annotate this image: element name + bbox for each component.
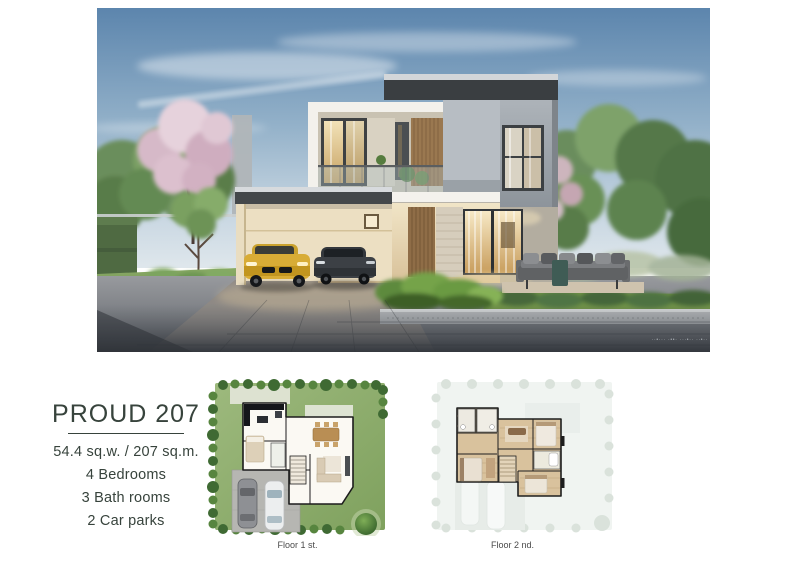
listing-info: PROUD 207 54.4 sq.w. / 207 sq.m. 4 Bedro… (34, 401, 218, 529)
staircase (290, 456, 306, 484)
wall-ornament (365, 215, 378, 228)
upper-floor (457, 408, 565, 496)
bathroom-a (458, 409, 475, 432)
render-watermark: ··•··· ·••· ···•·· ··•·· (640, 336, 708, 345)
spec-bedrooms: 4 Bedrooms (34, 467, 218, 483)
floor-plan-1 (205, 378, 390, 536)
spec-bathrooms: 3 Bath rooms (34, 490, 218, 506)
title-underline (68, 433, 184, 434)
front-door-wood (408, 207, 435, 277)
floor-plan-1-caption: Floor 1 st. (205, 540, 390, 550)
carport-roof (235, 187, 392, 192)
balcony-ledge-2 (561, 478, 565, 488)
floor-plan-2 (430, 378, 615, 536)
dining-set (313, 422, 339, 447)
staircase-2 (499, 456, 516, 482)
house-render-scene (97, 8, 710, 352)
bathroom (271, 443, 285, 467)
travertine-strip (436, 207, 463, 277)
balcony-ledge-1 (561, 436, 565, 446)
flat-roof (384, 74, 558, 100)
bedroom-3-bed (525, 475, 547, 493)
sitting-area (505, 426, 528, 442)
plan-car-white (265, 481, 284, 530)
bedroom-bed (246, 436, 264, 462)
floor-plan-2-caption: Floor 2 nd. (420, 540, 605, 550)
spec-carparks: 2 Car parks (34, 513, 218, 529)
hero-render: ··•··· ·••· ···•·· ··•·· (97, 8, 710, 352)
center-gray-panel (443, 92, 500, 192)
interior-shelf (501, 222, 515, 248)
glass-living-wall (463, 209, 523, 275)
plan-car-gray (238, 479, 257, 528)
bedroom-2-bed (536, 422, 556, 446)
listing-area: 54.4 sq.w. / 207 sq.m. (34, 444, 218, 460)
patio-tiles-2 (305, 405, 353, 418)
left-hedge (97, 217, 137, 277)
listing-title: PROUD 207 (34, 401, 218, 427)
balcony-plant (376, 155, 386, 165)
master-bed (460, 458, 495, 481)
floor-plan-1-drawing (205, 378, 390, 536)
topiary-bush (355, 513, 377, 535)
bathroom-c (534, 451, 560, 469)
brochure-page: ··•··· ·••· ···•·· ··•·· PROUD 207 54.4 … (0, 0, 800, 566)
outdoor-sofa (502, 253, 644, 293)
floor-plan-2-drawing (430, 378, 615, 536)
throw-blanket (552, 260, 568, 286)
right-gray-volume (500, 100, 558, 207)
